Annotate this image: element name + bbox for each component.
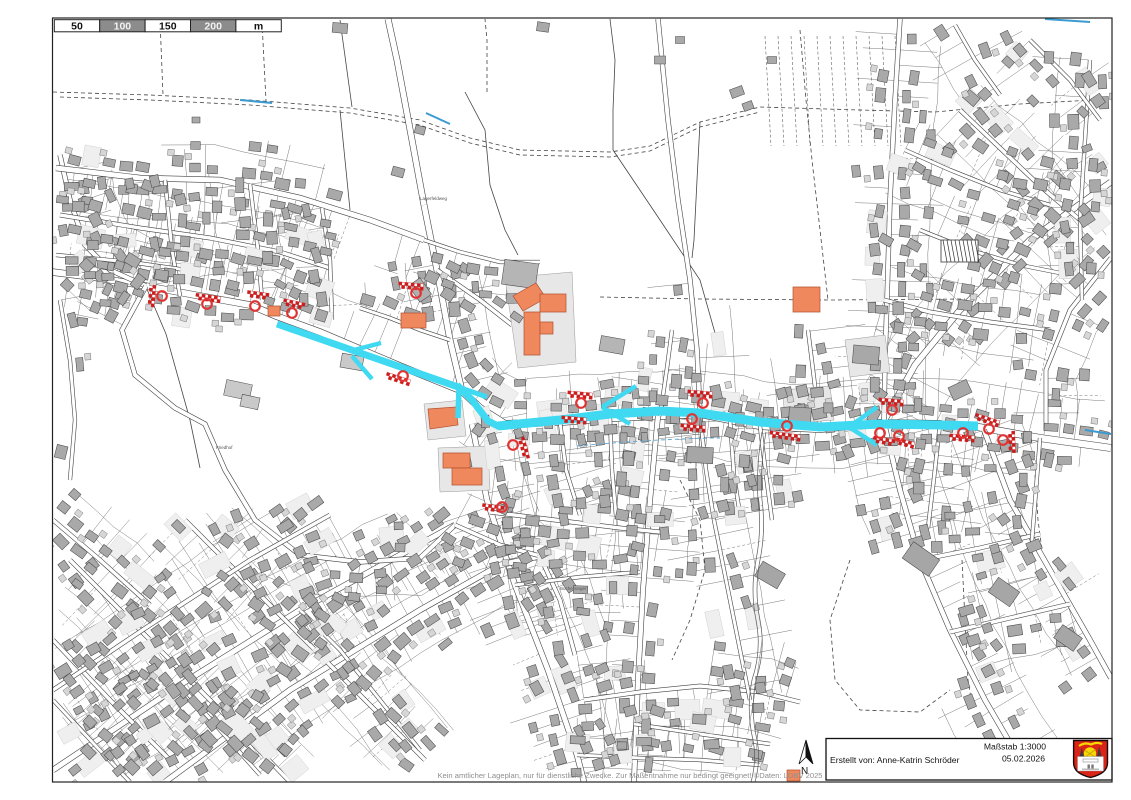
svg-text:m: m [254,21,263,33]
svg-text:Maßstab 1:3000: Maßstab 1:3000 [984,742,1046,752]
svg-text:200: 200 [204,21,222,33]
svg-text:150: 150 [159,21,177,33]
svg-text:Buchersinger: Buchersinger [560,586,587,591]
svg-text:Lagerfeldweg: Lagerfeldweg [420,196,448,201]
svg-text:100: 100 [114,21,132,33]
svg-text:Friedhof: Friedhof [216,445,233,450]
svg-text:50: 50 [71,21,83,33]
svg-text:Kein amtlicher Lageplan, nur f: Kein amtlicher Lageplan, nur für dienstl… [437,771,822,780]
svg-text:05.02.2026: 05.02.2026 [1002,754,1045,764]
svg-text:Erstellt von: Anne-Katrin Schr: Erstellt von: Anne-Katrin Schröder [830,755,960,765]
